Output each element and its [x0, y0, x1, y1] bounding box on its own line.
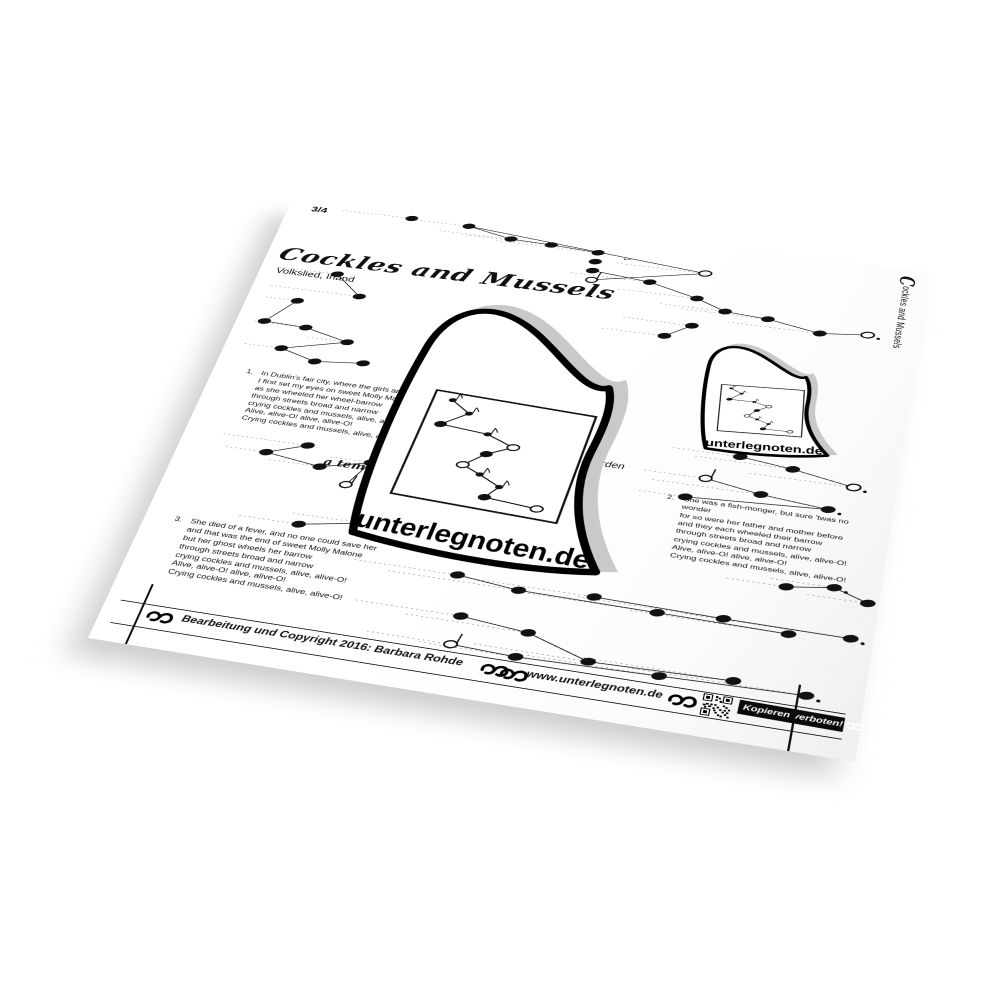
- guide-line: [226, 446, 261, 451]
- qr-module: [725, 707, 728, 709]
- melody-line: [456, 575, 521, 590]
- note: [586, 268, 600, 274]
- guide-line: [644, 470, 699, 478]
- note-stem: [711, 469, 716, 479]
- qr-module: [719, 701, 722, 703]
- note: [456, 462, 469, 468]
- qr-module: [714, 704, 717, 706]
- qr-module: [726, 712, 729, 714]
- qr-module: [717, 714, 720, 716]
- qr-module: [716, 696, 719, 698]
- qr-module: [728, 709, 731, 711]
- qr-module: [706, 703, 709, 705]
- qr-finder: [703, 710, 708, 714]
- note: [798, 692, 815, 700]
- guide-line: [727, 578, 780, 586]
- melody-line: [647, 282, 700, 298]
- augmentation-dot: [863, 490, 867, 493]
- swirl-path: [147, 611, 173, 623]
- guide-line: [727, 322, 813, 333]
- note: [291, 521, 306, 528]
- note: [786, 430, 793, 433]
- melody-line: [315, 357, 363, 367]
- qr-finder: [706, 696, 711, 700]
- guide-line: [245, 343, 276, 347]
- note: [699, 475, 712, 481]
- qr-module: [723, 706, 726, 708]
- melody-line: [266, 440, 308, 457]
- qr-module: [703, 703, 706, 705]
- arrow-icon: ←: [620, 254, 635, 264]
- qr-module: [708, 705, 711, 707]
- note: [780, 630, 797, 638]
- swirl-path: [669, 695, 696, 708]
- note: [725, 677, 742, 685]
- melody-line: [466, 226, 514, 239]
- note: [812, 330, 827, 336]
- augmentation-dot: [816, 699, 821, 703]
- note: [846, 484, 861, 491]
- note: [643, 279, 657, 285]
- note: [258, 318, 272, 324]
- guide-line: [269, 460, 314, 466]
- guide-line: [807, 595, 861, 603]
- note: [699, 271, 712, 277]
- melody-line: [766, 319, 821, 333]
- note: [842, 635, 859, 643]
- note: [545, 242, 558, 248]
- scene: 3/4 Cockles and Mussels Volkslied, Irlan…: [0, 0, 1000, 1000]
- guide-line: [617, 263, 700, 273]
- note: [785, 466, 801, 473]
- note: [406, 216, 419, 222]
- note: [586, 593, 602, 601]
- qr-module: [713, 709, 716, 711]
- melody-line: [281, 335, 347, 357]
- guide-line: [619, 289, 692, 298]
- qr-module: [724, 714, 727, 716]
- qr-module: [717, 707, 720, 709]
- note: [761, 316, 776, 322]
- melody-line: [518, 590, 657, 612]
- guide-line: [307, 337, 341, 341]
- note: [301, 442, 315, 449]
- note: [463, 223, 476, 229]
- guide-line: [749, 473, 847, 486]
- note: [744, 414, 751, 417]
- note: [820, 506, 836, 513]
- note: [591, 250, 605, 256]
- swirl-path: [846, 722, 863, 730]
- note: [766, 405, 773, 408]
- qr-code-icon: [699, 693, 733, 719]
- melody-line: [791, 469, 856, 487]
- guide-line: [496, 241, 592, 252]
- melody-line: [459, 616, 530, 633]
- qr-finder: [725, 699, 730, 703]
- note: [778, 583, 794, 591]
- note: [444, 641, 457, 648]
- note: [504, 236, 517, 242]
- watermark-logo-small: unterlegnoten.de: [691, 338, 841, 463]
- guide-line: [266, 297, 292, 300]
- guide-line: [239, 515, 293, 523]
- melody-line: [450, 644, 516, 657]
- guide-line: [342, 210, 407, 218]
- side-label-text: ockles and Mussels: [890, 286, 912, 350]
- note: [291, 298, 304, 304]
- melody-line: [704, 478, 763, 494]
- melody-line: [591, 271, 651, 283]
- augmentation-dot: [876, 338, 880, 341]
- qr-module: [719, 715, 722, 717]
- note-stem: [456, 633, 462, 644]
- note: [588, 259, 602, 265]
- note: [715, 615, 731, 623]
- guide-line: [388, 571, 512, 590]
- note: [508, 653, 524, 661]
- note: [507, 445, 519, 451]
- qr-module: [719, 698, 722, 700]
- note: [450, 571, 465, 579]
- note: [453, 612, 468, 620]
- ornament-swirl-icon: [844, 718, 865, 736]
- qr-module: [714, 712, 717, 714]
- note-stem: [596, 272, 601, 280]
- qr-module: [710, 704, 713, 706]
- qr-module: [704, 706, 707, 708]
- qr-module: [721, 712, 724, 714]
- melody-line: [523, 633, 593, 662]
- qr-module: [726, 717, 729, 719]
- note: [861, 332, 875, 338]
- swirl-path: [500, 669, 527, 681]
- note: [356, 360, 370, 366]
- augmentation-dot: [860, 642, 864, 645]
- note: [649, 609, 665, 617]
- qr-module: [723, 710, 726, 712]
- melody-line: [551, 245, 599, 253]
- note: [651, 672, 668, 680]
- note: [299, 325, 313, 331]
- note: [753, 491, 769, 498]
- note: [259, 449, 273, 456]
- note: [353, 294, 366, 300]
- guide-line: [223, 434, 301, 445]
- qr-module: [715, 699, 718, 701]
- qr-module: [719, 709, 722, 711]
- guide-line: [367, 631, 444, 643]
- qr-module: [712, 707, 715, 709]
- melody-line: [462, 226, 710, 273]
- augmentation-dot: [837, 512, 841, 515]
- time-signature: 3/4: [310, 205, 329, 215]
- guide-line: [271, 286, 354, 296]
- note: [530, 506, 543, 512]
- melody-line: [263, 452, 322, 467]
- note: [340, 339, 354, 345]
- guide-line: [416, 220, 464, 226]
- melody-line: [588, 659, 733, 685]
